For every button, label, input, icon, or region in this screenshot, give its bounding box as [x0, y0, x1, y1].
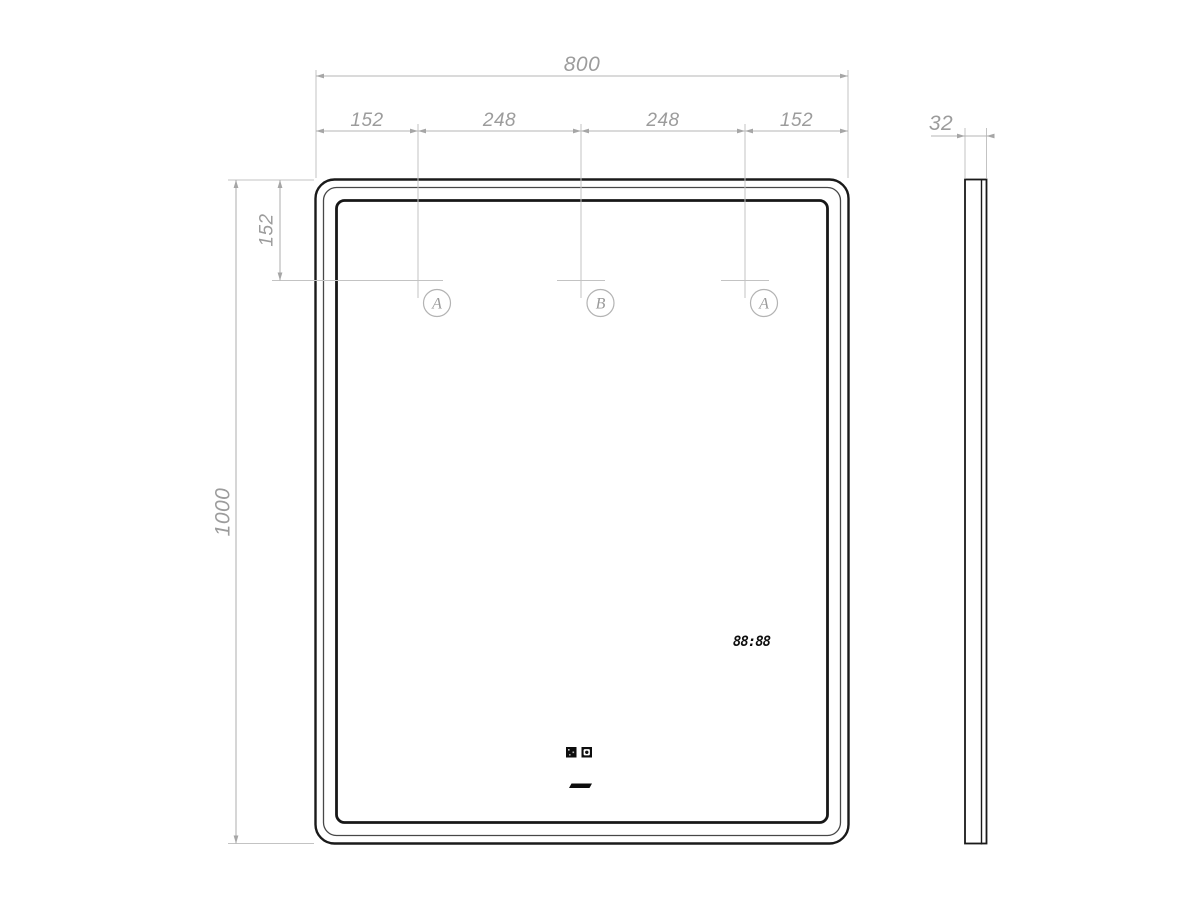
sensor-square	[566, 747, 577, 758]
arrowhead	[987, 134, 995, 139]
light-sensor-icon	[566, 747, 577, 758]
arrowhead	[278, 273, 283, 281]
dimension-overall-height: 1000	[212, 180, 315, 844]
touch-button-icon	[582, 747, 593, 758]
dimension-label-152-vertical: 152	[257, 213, 278, 246]
mirror-middle-frame	[324, 188, 841, 836]
arrowhead	[737, 129, 745, 134]
side-view	[965, 180, 987, 845]
dimension-label-152-right: 152	[780, 110, 813, 131]
dimension-label-32: 32	[929, 112, 953, 135]
front-view	[316, 180, 849, 844]
arrowhead	[840, 129, 848, 134]
dimension-label-248-right: 248	[645, 110, 679, 131]
arrowhead	[278, 180, 283, 188]
arrowhead	[957, 134, 965, 139]
arrowhead	[581, 129, 589, 134]
side-profile-body	[965, 180, 987, 844]
arrowhead	[316, 74, 324, 79]
mount-point-label-b: B	[596, 296, 606, 313]
mount-point-label-a2: A	[758, 296, 769, 313]
technical-drawing-canvas: 800 152 248 248 152 152 1000	[0, 0, 1200, 900]
dimension-label-152-left: 152	[350, 110, 383, 131]
mirror-dimension-drawing: 800 152 248 248 152 152 1000	[0, 0, 1200, 900]
arrowhead	[745, 129, 753, 134]
arrowhead	[410, 129, 418, 134]
dimension-label-248-left: 248	[482, 110, 516, 131]
mirror-display-elements: 88:88	[566, 634, 771, 788]
dimension-overall-width: 800	[316, 53, 848, 178]
dimension-mount-spacing: 152 248 248 152	[316, 110, 848, 133]
sensor-speckle	[573, 752, 575, 754]
mount-points: A B A	[418, 124, 778, 317]
arrowhead	[418, 129, 426, 134]
touch-button-dot	[585, 751, 588, 754]
digital-clock-display: 88:88	[733, 634, 771, 650]
dimension-label-1000: 1000	[212, 488, 235, 537]
arrowhead	[573, 129, 581, 134]
arrowhead	[234, 836, 239, 844]
dimension-thickness: 32	[929, 112, 995, 178]
arrowhead	[840, 74, 848, 79]
touch-slider-bar	[569, 784, 592, 789]
sensor-speckle	[568, 749, 570, 751]
mirror-outer-frame	[316, 180, 849, 844]
dimension-label-800: 800	[564, 53, 601, 76]
arrowhead	[316, 129, 324, 134]
arrowhead	[234, 180, 239, 188]
mount-point-label-a1: A	[431, 296, 442, 313]
sensor-speckle	[569, 754, 571, 756]
